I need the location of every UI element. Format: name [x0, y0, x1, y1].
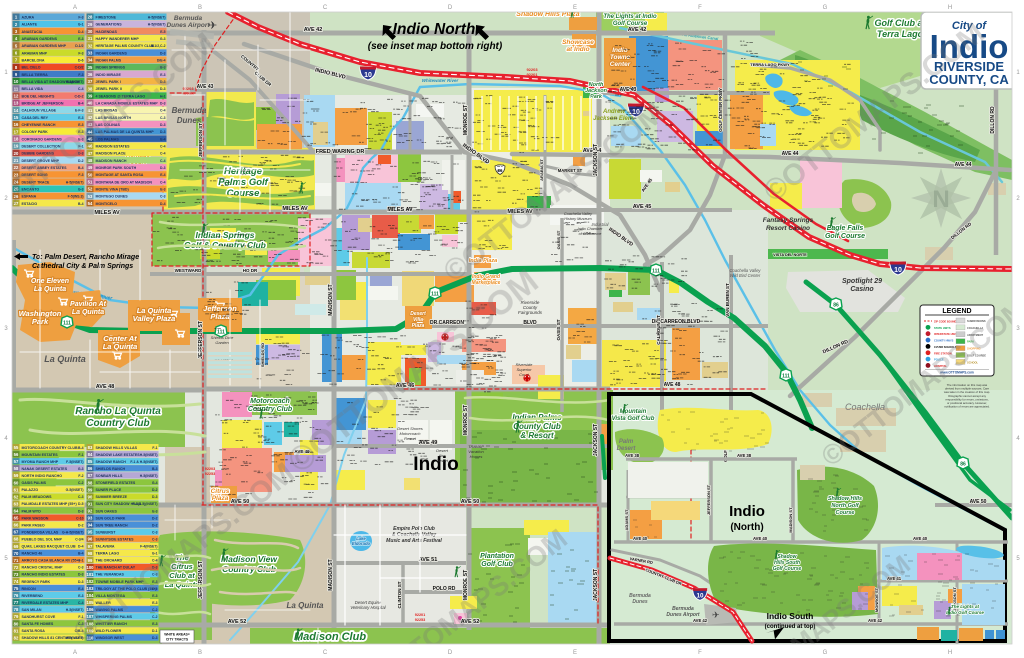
svg-text:C-4: C-4 [160, 180, 166, 184]
svg-text:83: 83 [88, 445, 93, 450]
svg-text:Indio Golf Course: Indio Golf Course [946, 610, 984, 615]
svg-text:INDIAN GARDENS: INDIAN GARDENS [96, 51, 128, 55]
svg-text:AVE 52: AVE 52 [228, 619, 247, 625]
svg-text:The Lights at: The Lights at [951, 604, 980, 609]
svg-text:78: 78 [14, 607, 19, 612]
svg-text:111: 111 [652, 269, 660, 275]
svg-text:51: 51 [88, 180, 93, 185]
svg-text:OASIS PALMS: OASIS PALMS [22, 481, 47, 485]
svg-text:D: D [448, 650, 453, 656]
svg-text:Palm: Palm [619, 439, 634, 445]
svg-text:H-5(INSET): H-5(INSET) [66, 180, 84, 184]
svg-text:C-4: C-4 [78, 87, 84, 91]
svg-text:Garden: Garden [215, 340, 229, 345]
svg-text:CITY TRACTS: CITY TRACTS [166, 638, 189, 642]
svg-text:ARABIAN MHP: ARABIAN MHP [22, 51, 48, 55]
svg-text:E: E [573, 5, 577, 11]
svg-text:(North): (North) [730, 522, 763, 533]
svg-text:SUN TREE RANCH: SUN TREE RANCH [96, 523, 129, 527]
svg-text:61: 61 [14, 487, 19, 492]
svg-text:D-4: D-4 [78, 545, 84, 549]
svg-text:72: 72 [14, 565, 19, 570]
svg-text:Desert: Desert [617, 446, 637, 452]
svg-text:31: 31 [88, 36, 93, 41]
svg-text:MADISON ST: MADISON ST [788, 507, 793, 533]
svg-text:73: 73 [14, 572, 19, 577]
svg-text:Plaza: Plaza [412, 323, 425, 329]
svg-text:36: 36 [88, 72, 93, 77]
svg-text:B-4: B-4 [78, 166, 84, 170]
svg-text:AVE 48: AVE 48 [96, 384, 115, 390]
svg-text:F: F [698, 5, 702, 11]
svg-text:C-4: C-4 [160, 109, 166, 113]
svg-text:68: 68 [14, 537, 19, 542]
svg-text:49: 49 [88, 165, 93, 170]
svg-text:13: 13 [14, 101, 19, 106]
svg-text:SANTA FE HOMES: SANTA FE HOMES [22, 622, 54, 626]
svg-text:INTERSTATE HWYS: INTERSTATE HWYS [934, 332, 959, 336]
svg-text:11: 11 [14, 86, 19, 91]
svg-text:G: G [823, 650, 828, 656]
svg-text:88: 88 [88, 480, 93, 485]
svg-text:D-2: D-2 [152, 523, 158, 527]
svg-text:28: 28 [88, 15, 93, 20]
svg-text:LEGEND: LEGEND [942, 308, 971, 315]
svg-text:FRED WARING DR: FRED WARING DR [316, 149, 365, 155]
svg-text:69: 69 [14, 544, 19, 549]
svg-text:71: 71 [14, 558, 19, 563]
svg-text:Casino: Casino [850, 286, 874, 293]
svg-text:VISTA DEL NORTE: VISTA DEL NORTE [773, 253, 807, 257]
svg-text:MONTAGE AT SANTA ROSA: MONTAGE AT SANTA ROSA [96, 173, 144, 177]
svg-text:N: N [932, 186, 949, 213]
svg-text:ARABIAN GARDENS: ARABIAN GARDENS [22, 37, 58, 41]
svg-text:Indio: Indio [729, 503, 765, 520]
svg-text:Madison View: Madison View [221, 554, 278, 564]
svg-text:21: 21 [14, 158, 19, 163]
svg-text:BOE DEL HEIGHTS: BOE DEL HEIGHTS [22, 94, 55, 98]
svg-text:58: 58 [14, 466, 19, 471]
svg-text:76: 76 [14, 593, 19, 598]
svg-text:STONEFIELD ESTATES: STONEFIELD ESTATES [96, 481, 136, 485]
svg-text:AVE 42: AVE 42 [868, 618, 883, 623]
svg-text:SUN GOLD PARK: SUN GOLD PARK [96, 516, 126, 520]
svg-text:33: 33 [88, 51, 93, 56]
svg-text:D-3: D-3 [160, 123, 166, 127]
svg-text:98: 98 [88, 551, 93, 556]
svg-text:102: 102 [87, 579, 95, 584]
svg-text:16: 16 [14, 122, 19, 127]
svg-text:C-4: C-4 [160, 159, 166, 163]
svg-text:B: B [198, 650, 202, 656]
svg-text:ADAMS ST: ADAMS ST [624, 509, 629, 530]
svg-text:H: H [948, 650, 952, 656]
svg-text:SONBAR HILLS: SONBAR HILLS [96, 474, 124, 478]
svg-text:F-5(INSET): F-5(INSET) [66, 460, 83, 464]
svg-text:C-3: C-3 [160, 195, 166, 199]
svg-text:MILES AV: MILES AV [387, 207, 413, 213]
svg-text:Country Club: Country Club [248, 406, 293, 413]
svg-text:A: A [73, 5, 77, 11]
svg-text:TERRA LAGO PKWY: TERRA LAGO PKWY [750, 62, 790, 67]
svg-text:E-3: E-3 [160, 188, 165, 192]
svg-text:D-6: D-6 [78, 59, 84, 63]
svg-text:MONTEGO DUNES: MONTEGO DUNES [96, 195, 129, 199]
svg-text:F-3: F-3 [78, 16, 83, 20]
svg-text:Dunes Airport: Dunes Airport [166, 22, 210, 29]
svg-text:B-4: B-4 [78, 552, 84, 556]
svg-text:BLVD: BLVD [523, 320, 537, 326]
svg-text:D-3: D-3 [78, 580, 84, 584]
svg-text:H-5(INSET): H-5(INSET) [148, 23, 166, 27]
svg-text:20: 20 [14, 151, 19, 156]
svg-text:60: 60 [14, 480, 19, 485]
svg-text:62: 62 [14, 494, 19, 499]
svg-text:65: 65 [14, 516, 19, 521]
svg-text:SUNBURST: SUNBURST [96, 530, 117, 534]
svg-text:SHADOW RANCH: SHADOW RANCH [96, 460, 127, 464]
svg-text:JEFFERSON ST: JEFFERSON ST [198, 321, 204, 359]
svg-text:97: 97 [88, 544, 93, 549]
svg-text:E-4: E-4 [78, 587, 83, 591]
svg-text:F-3: F-3 [78, 173, 83, 177]
svg-text:111: 111 [63, 321, 71, 327]
svg-text:59: 59 [14, 473, 19, 478]
svg-text:96: 96 [88, 537, 93, 542]
svg-text:RANCHO 46: RANCHO 46 [22, 552, 43, 556]
svg-text:ALIANTE: ALIANTE [22, 23, 38, 27]
svg-text:D-3: D-3 [152, 636, 158, 640]
svg-text:JEFFERSON ST: JEFFERSON ST [198, 123, 203, 157]
svg-text:MADISON PLACE: MADISON PLACE [96, 152, 127, 156]
svg-text:Golf Course: Golf Course [773, 566, 802, 572]
svg-text:Bermuda: Bermuda [172, 106, 207, 115]
svg-text:H-5(INSET): H-5(INSET) [140, 453, 158, 457]
svg-text:92253: 92253 [415, 618, 426, 622]
svg-text:C-3: C-3 [160, 116, 166, 120]
svg-text:Golf Club at: Golf Club at [875, 18, 927, 28]
svg-text:F-2: F-2 [78, 474, 83, 478]
svg-text:F-1: F-1 [152, 446, 157, 450]
svg-text:D-2: D-2 [78, 523, 84, 527]
svg-text:PALM MEADOWS: PALM MEADOWS [22, 495, 53, 499]
svg-text:THE ORCHARD: THE ORCHARD [96, 559, 123, 563]
svg-text:Vista Golf Club: Vista Golf Club [612, 416, 655, 422]
svg-text:ARROYO CASA BLANCA RV (55+): ARROYO CASA BLANCA RV (55+) [22, 559, 81, 563]
svg-text:32: 32 [88, 43, 93, 48]
svg-text:JEFFERSON ST: JEFFERSON ST [198, 561, 204, 599]
svg-text:15: 15 [14, 115, 19, 120]
svg-text:10: 10 [364, 72, 372, 79]
svg-text:90: 90 [88, 494, 93, 499]
svg-text:To: Palm Desert, Rancho Mirage: To: Palm Desert, Rancho Mirage [32, 254, 139, 261]
svg-text:F-5(INS.3): F-5(INS.3) [68, 195, 84, 199]
svg-text:AVE 43: AVE 43 [197, 84, 214, 90]
svg-text:JACKSON ST: JACKSON ST [593, 569, 599, 601]
svg-text:14: 14 [14, 108, 19, 113]
svg-text:MONROE PARK SOUTH: MONROE PARK SOUTH [96, 166, 137, 170]
svg-text:H-5(INSET): H-5(INSET) [140, 474, 158, 478]
svg-text:D-3: D-3 [160, 130, 166, 134]
svg-text:55: 55 [14, 445, 19, 450]
svg-text:PONDEROSA VILLAS: PONDEROSA VILLAS [22, 530, 59, 534]
svg-text:INDIO MIRAGE: INDIO MIRAGE [96, 73, 122, 77]
svg-text:MADISON RANCH: MADISON RANCH [96, 159, 127, 163]
svg-text:Fairgrounds: Fairgrounds [518, 310, 543, 315]
svg-text:80: 80 [14, 621, 19, 626]
svg-text:FIRESTONE: FIRESTONE [96, 16, 117, 20]
svg-text:B: B [198, 5, 202, 11]
svg-text:C-2: C-2 [152, 608, 158, 612]
svg-text:E-4: E-4 [160, 137, 165, 141]
svg-text:G-4: G-4 [152, 481, 158, 485]
svg-text:La Quinta: La Quinta [34, 286, 66, 293]
svg-text:95: 95 [88, 530, 93, 535]
svg-text:67: 67 [14, 530, 19, 535]
svg-text:29: 29 [88, 22, 93, 27]
svg-text:Indio North: Indio North [393, 21, 476, 38]
svg-text:HACIENDAS: HACIENDAS [96, 30, 118, 34]
svg-text:64: 64 [14, 509, 19, 514]
svg-text:92201: 92201 [526, 72, 538, 77]
svg-text:WESTWARD: WESTWARD [175, 268, 202, 273]
svg-text:F-4(INSET): F-4(INSET) [140, 545, 157, 549]
svg-text:C-4: C-4 [160, 152, 166, 156]
svg-text:CALHOUN VILLAGE: CALHOUN VILLAGE [22, 109, 57, 113]
svg-text:E-3: E-3 [78, 594, 83, 598]
svg-text:MONROE ST: MONROE ST [463, 105, 469, 135]
svg-text:C: C [323, 5, 328, 11]
svg-text:BELLA VIDA: BELLA VIDA [22, 87, 44, 91]
svg-text:PARK WASSON: PARK WASSON [22, 516, 49, 520]
svg-text:REGENCY PARK: REGENCY PARK [22, 580, 51, 584]
svg-text:F-1: F-1 [78, 453, 83, 457]
svg-text:D-1/2: D-1/2 [75, 44, 83, 48]
svg-text:79: 79 [14, 614, 19, 619]
svg-text:MONTANA DE ORO AT MADISON: MONTANA DE ORO AT MADISON [96, 180, 153, 184]
svg-text:G-3: G-3 [78, 467, 84, 471]
svg-text:E-3: E-3 [152, 601, 157, 605]
svg-text:SANTA ROSA: SANTA ROSA [22, 629, 46, 633]
svg-text:JEFFERSON ST: JEFFERSON ST [706, 484, 711, 515]
svg-text:Course: Course [836, 510, 855, 516]
svg-text:Spotlight 29: Spotlight 29 [842, 278, 882, 285]
svg-text:MADISON ST: MADISON ST [328, 284, 334, 315]
svg-text:66: 66 [14, 523, 19, 528]
svg-text:AVE 38: AVE 38 [737, 453, 752, 458]
svg-text:C-D-2: C-D-2 [74, 94, 83, 98]
svg-text:F-3: F-3 [78, 51, 83, 55]
svg-text:JEWEL PARK I: JEWEL PARK I [96, 80, 121, 84]
svg-text:JACKSON ST: JACKSON ST [593, 424, 599, 456]
svg-text:86: 86 [833, 303, 839, 309]
svg-text:AVE 40: AVE 40 [633, 536, 648, 541]
svg-text:56: 56 [14, 452, 19, 457]
svg-text:PARK PASEO: PARK PASEO [22, 523, 45, 527]
svg-text:TALAVERA: TALAVERA [96, 545, 115, 549]
svg-text:A: A [73, 650, 77, 656]
svg-text:C-D/2: C-D/2 [75, 66, 84, 70]
svg-text:Madison Club: Madison Club [294, 631, 366, 643]
svg-text:D-2: D-2 [152, 516, 158, 520]
svg-text:53: 53 [88, 194, 93, 199]
svg-text:SUNNYSIDE ESTATES: SUNNYSIDE ESTATES [96, 538, 135, 542]
svg-text:B-3: B-3 [152, 467, 158, 471]
svg-text:D-4: D-4 [160, 202, 166, 206]
svg-text:92203: 92203 [205, 467, 216, 471]
svg-text:C-3: C-3 [78, 495, 84, 499]
svg-text:One Eleven: One Eleven [31, 278, 69, 285]
svg-text:North Golf: North Golf [831, 503, 859, 509]
svg-text:D-2: D-2 [152, 488, 158, 492]
svg-text:D-3: D-3 [160, 102, 166, 106]
svg-text:F-1: F-1 [78, 559, 83, 563]
svg-text:87: 87 [88, 473, 93, 478]
svg-text:MYOMA RANCH MHP: MYOMA RANCH MHP [22, 460, 59, 464]
svg-text:HO DR: HO DR [243, 268, 258, 273]
svg-text:AVE 45: AVE 45 [633, 204, 652, 210]
svg-text:C-10: C-10 [76, 516, 83, 520]
svg-text:101: 101 [87, 572, 95, 577]
svg-text:AZURA: AZURA [22, 16, 35, 20]
svg-text:SHADOW LAKE ESTATES: SHADOW LAKE ESTATES [96, 453, 141, 457]
svg-text:(see inset map bottom right): (see inset map bottom right) [368, 41, 503, 52]
svg-text:PUEBLO DEL SOL MHP: PUEBLO DEL SOL MHP [22, 538, 63, 542]
svg-text:La Quinta: La Quinta [44, 354, 86, 364]
svg-text:La Quinta: La Quinta [72, 309, 104, 316]
svg-text:86: 86 [960, 462, 966, 468]
svg-text:Resort Casino: Resort Casino [766, 225, 810, 232]
svg-text:G-1: G-1 [78, 23, 84, 27]
svg-text:18: 18 [14, 137, 19, 142]
svg-text:Citrus: Citrus [211, 488, 230, 495]
svg-text:AVE 50: AVE 50 [461, 499, 480, 505]
svg-text:Motorcoach: Motorcoach [250, 398, 290, 405]
svg-text:PALAZZO: PALAZZO [22, 488, 39, 492]
svg-text:D-5: D-5 [78, 502, 84, 506]
svg-text:THE RANCH AT DULAY: THE RANCH AT DULAY [96, 566, 136, 570]
svg-text:C-3: C-3 [78, 566, 84, 570]
svg-text:17: 17 [14, 129, 19, 134]
svg-text:RINCON: RINCON [22, 587, 37, 591]
svg-text:at Indio: at Indio [566, 46, 589, 53]
svg-text:111: 111 [217, 330, 225, 336]
svg-text:C-2: C-2 [152, 615, 158, 619]
svg-text:D-3: D-3 [78, 509, 84, 513]
svg-text:MADISON ST: MADISON ST [328, 559, 334, 590]
svg-text:10: 10 [696, 593, 704, 600]
svg-text:C-4: C-4 [160, 145, 166, 149]
svg-text:RIVERDALE ESTATES MHP: RIVERDALE ESTATES MHP [22, 601, 69, 605]
svg-text:E-3: E-3 [152, 509, 157, 513]
svg-text:Golf Course: Golf Course [825, 233, 865, 240]
svg-text:F-G(4-5)(INSET): F-G(4-5)(INSET) [132, 502, 157, 506]
svg-text:C: C [323, 650, 328, 656]
svg-text:Veterinary Hospital: Veterinary Hospital [350, 605, 386, 610]
svg-text:AVE 38: AVE 38 [625, 453, 640, 458]
svg-text:F-3: F-3 [78, 73, 83, 77]
svg-text:63: 63 [14, 501, 19, 506]
svg-text:12: 12 [14, 94, 19, 99]
svg-text:NANAK DESERT ESTATES: NANAK DESERT ESTATES [22, 467, 68, 471]
svg-text:10: 10 [894, 267, 902, 274]
svg-text:70: 70 [14, 551, 19, 556]
svg-text:MOUNTAIN ESTATES: MOUNTAIN ESTATES [22, 453, 59, 457]
svg-text:OASIS ST: OASIS ST [556, 319, 561, 340]
svg-text:MONTICELO: MONTICELO [96, 202, 118, 206]
svg-text:77: 77 [14, 600, 19, 605]
svg-text:84: 84 [88, 452, 93, 457]
svg-text:D-3: D-3 [152, 495, 158, 499]
svg-text:THE VERANDAS: THE VERANDAS [96, 573, 125, 577]
svg-text:39: 39 [88, 94, 93, 99]
svg-text:100: 100 [87, 565, 95, 570]
svg-text:52: 52 [88, 187, 93, 192]
svg-text:D-1: D-1 [152, 629, 158, 633]
svg-text:AVE 44: AVE 44 [955, 162, 972, 168]
svg-text:48: 48 [88, 158, 93, 163]
svg-text:AVE 50: AVE 50 [970, 499, 987, 505]
svg-text:SHADOW HILLS VILLAS: SHADOW HILLS VILLAS [96, 446, 138, 450]
svg-text:AVE 51: AVE 51 [419, 557, 438, 563]
svg-text:PALMDALE ESTATES MHP (55+): PALMDALE ESTATES MHP (55+) [22, 502, 78, 506]
svg-text:OASIS ST: OASIS ST [556, 230, 561, 249]
svg-text:notification of errors are app: notification of errors are appreciated. [944, 405, 990, 409]
svg-text:Eldorado: Eldorado [352, 541, 371, 546]
svg-text:& Resort: & Resort [520, 431, 554, 440]
svg-text:G-5(INSET): G-5(INSET) [66, 488, 84, 492]
svg-text:103: 103 [87, 586, 95, 591]
svg-text:C-2: C-2 [78, 481, 84, 485]
svg-text:99: 99 [88, 558, 93, 563]
svg-text:E-5: E-5 [160, 30, 165, 34]
svg-text:MOTORCOACH COUNTRY CLUB: MOTORCOACH COUNTRY CLUB [22, 446, 78, 450]
svg-text:SUMMER BREEZE: SUMMER BREEZE [96, 495, 128, 499]
svg-text:AVE 42: AVE 42 [304, 27, 323, 33]
svg-text:QUAIL LAKES RACQUET CLUB: QUAIL LAKES RACQUET CLUB [22, 545, 76, 549]
svg-text:F-1 & H-5(INSET): F-1 & H-5(INSET) [130, 460, 157, 464]
svg-text:SUN OAKES: SUN OAKES [96, 509, 118, 513]
svg-text:37: 37 [88, 79, 93, 84]
svg-text:G-3: G-3 [160, 37, 166, 41]
svg-text:104: 104 [87, 593, 95, 598]
svg-text:AVE 40: AVE 40 [913, 536, 928, 541]
svg-text:TERRA LAGO: TERRA LAGO [96, 552, 120, 556]
svg-text:La Quinta: La Quinta [103, 342, 138, 351]
svg-text:E: E [573, 650, 577, 656]
svg-text:54: 54 [88, 201, 93, 206]
svg-text:34: 34 [88, 58, 93, 63]
svg-text:Cathedral City & Palm Springs: Cathedral City & Palm Springs [32, 263, 133, 270]
svg-text:86: 86 [88, 466, 93, 471]
svg-text:81: 81 [14, 628, 19, 633]
svg-text:Indio: Indio [612, 47, 628, 54]
svg-text:10: 10 [14, 79, 19, 84]
svg-text:40: 40 [88, 101, 93, 106]
svg-text:Whitewater River: Whitewater River [422, 78, 459, 83]
svg-text:G-3: G-3 [78, 188, 84, 192]
svg-text:Showcase: Showcase [562, 39, 594, 46]
svg-text:92: 92 [88, 509, 93, 514]
svg-text:BEL CIELO: BEL CIELO [22, 66, 41, 70]
svg-text:BELLA TIERRA: BELLA TIERRA [22, 73, 49, 77]
svg-text:VAN BUREN ST: VAN BUREN ST [725, 283, 730, 317]
svg-text:D-3: D-3 [78, 573, 84, 577]
svg-text:SHIELDS RD: SHIELDS RD [260, 343, 265, 367]
svg-text:Park: Park [590, 94, 603, 100]
svg-text:RANCHO INDIO ESTATES: RANCHO INDIO ESTATES [22, 573, 66, 577]
svg-text:Wild Bird Center: Wild Bird Center [730, 273, 761, 278]
